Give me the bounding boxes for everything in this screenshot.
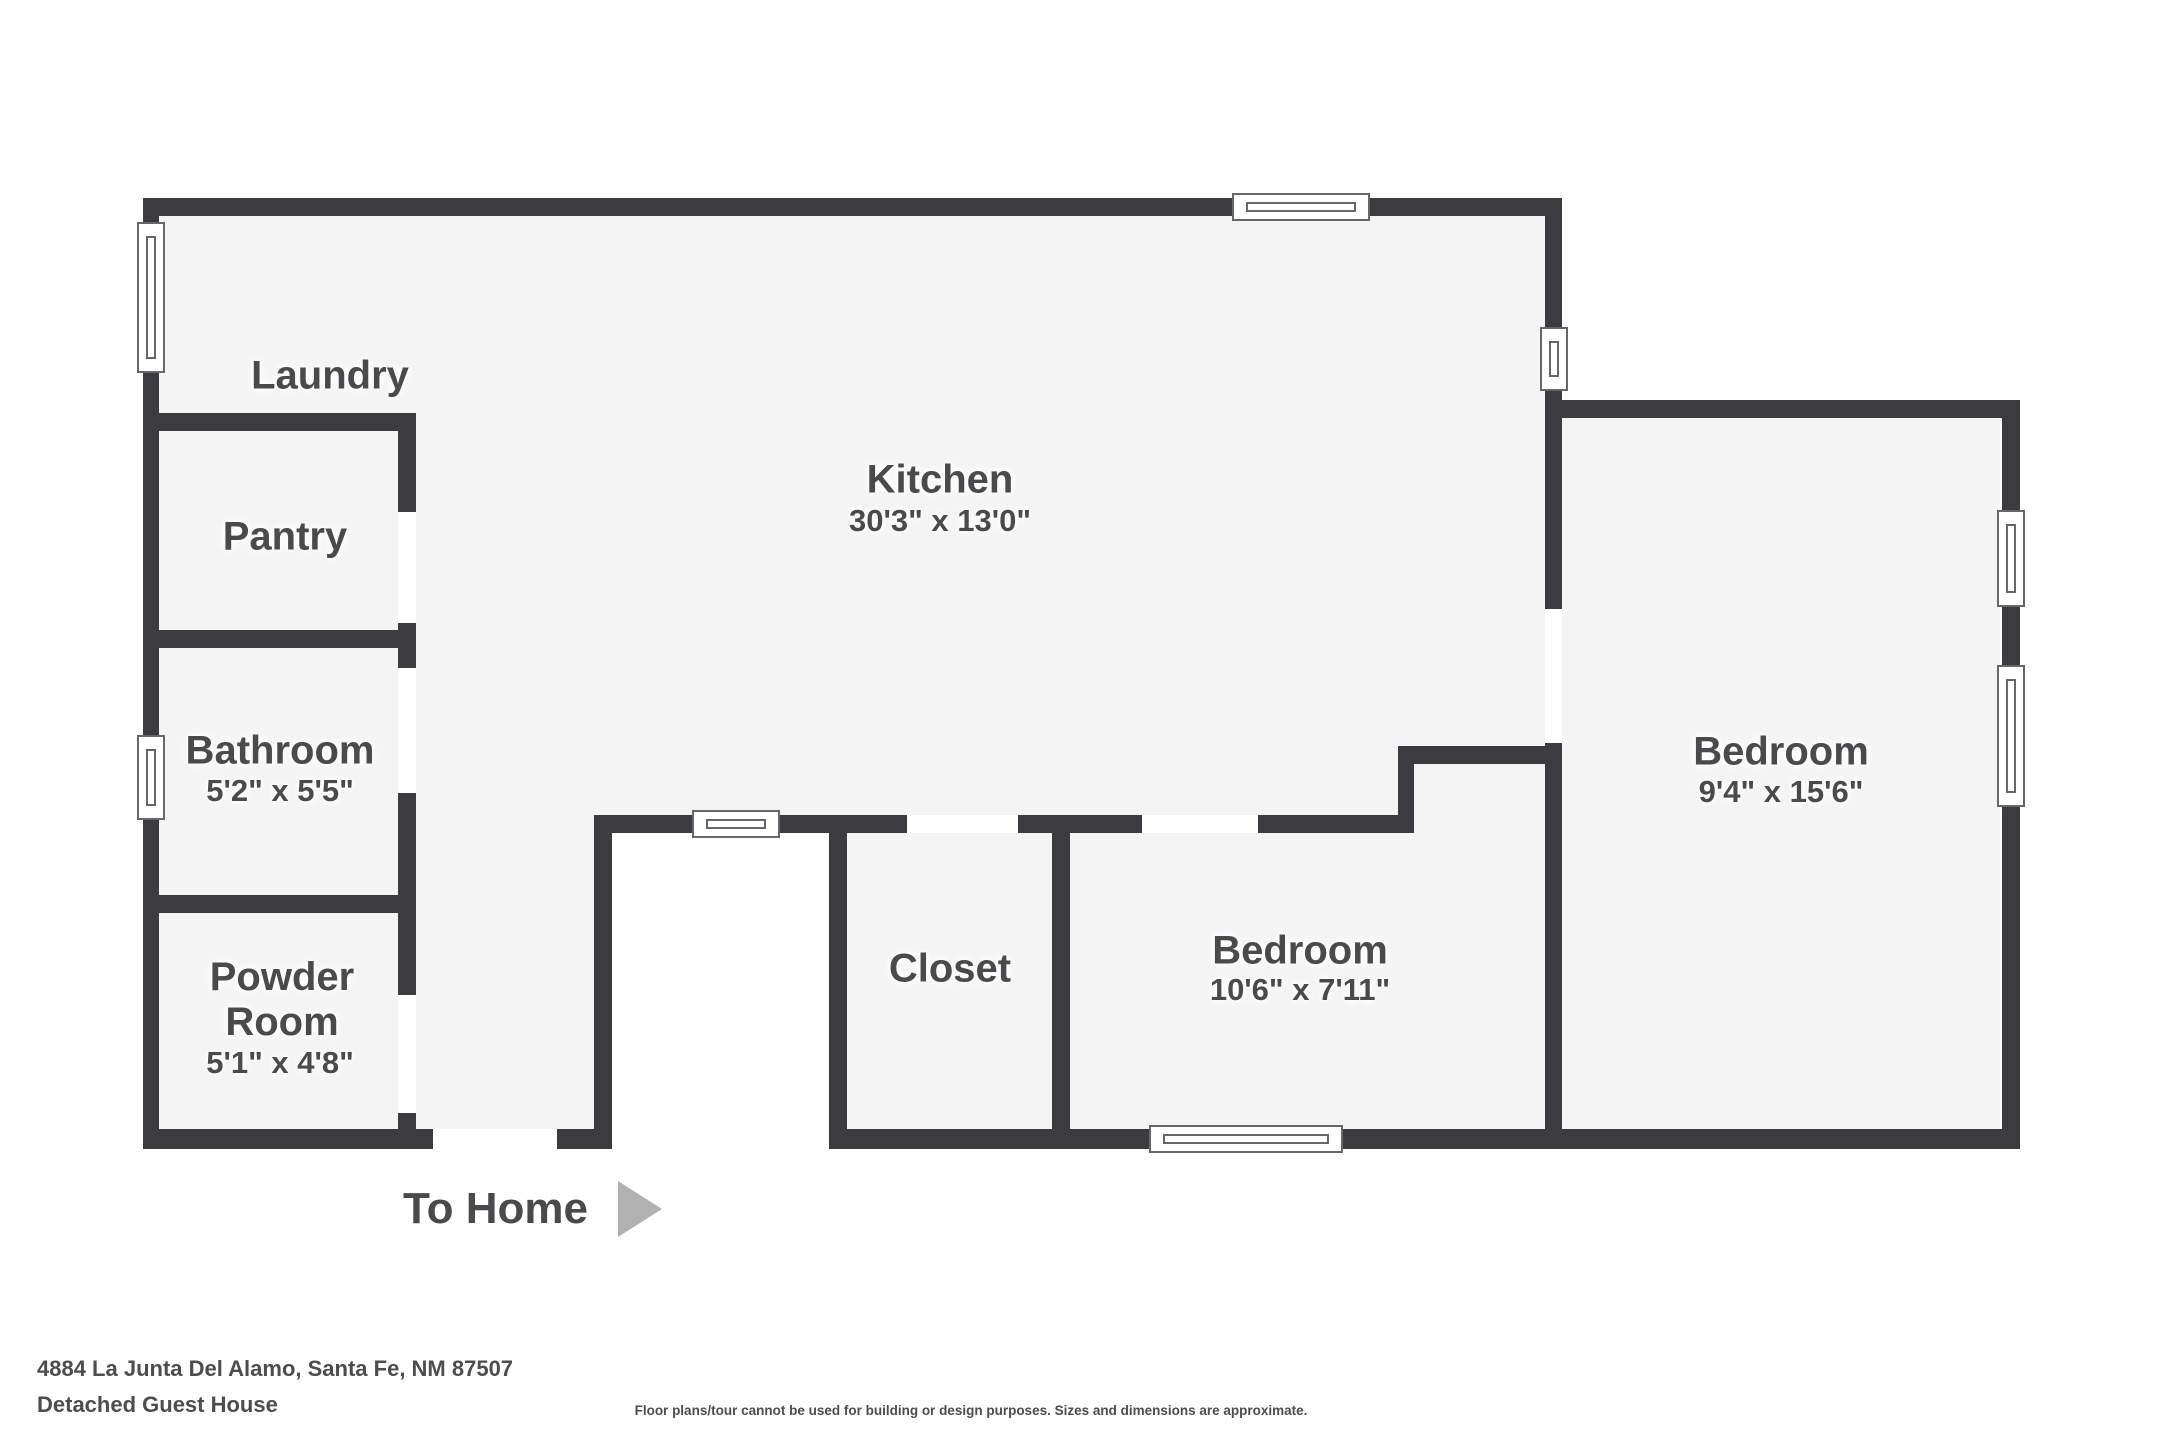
window-kitchen-top: [1232, 193, 1370, 221]
room-label-bathroom: Bathroom: [186, 729, 375, 774]
wall-bedroom-large-top: [1562, 400, 2020, 418]
window-glass: [706, 819, 766, 829]
room-dims-bedroom-small: 10'6" x 7'11": [1210, 972, 1390, 1008]
room-dims-bathroom: 5'2" x 5'5": [206, 773, 354, 809]
door-opening-bedroom-large: [1545, 609, 1562, 743]
to-home-annotation: To Home: [403, 1181, 662, 1237]
footer-subtitle: Detached Guest House: [37, 1392, 278, 1418]
room-dims-bedroom-large: 9'4" x 15'6": [1699, 774, 1864, 810]
window-bedroom-large-lower: [1997, 665, 2025, 807]
window-glass: [146, 236, 156, 359]
window-kitchen-notch: [692, 810, 780, 838]
door-opening-closet: [907, 815, 1018, 833]
window-kitchen-right: [1540, 327, 1568, 391]
wall-pantry-bottom: [143, 630, 416, 648]
window-laundry-left: [137, 222, 165, 373]
door-opening-pantry: [398, 512, 416, 623]
window-bedroom-small-bottom: [1149, 1125, 1343, 1153]
wall-bathroom-bottom: [143, 895, 416, 913]
door-opening-bathroom: [398, 668, 416, 793]
room-label-laundry: Laundry: [251, 354, 409, 399]
room-label-kitchen: Kitchen: [867, 458, 1014, 503]
floor-hallway: [416, 833, 594, 1129]
wall-closet-bedroom-divider: [1052, 833, 1070, 1149]
window-bathroom-left: [137, 735, 165, 820]
room-label-bedroom-large: Bedroom: [1693, 730, 1869, 775]
door-opening-to-home: [433, 1129, 557, 1149]
wall-bottom-right: [829, 1129, 2020, 1149]
window-bedroom-large-upper: [1997, 510, 2025, 607]
wall-pantry-top: [143, 413, 416, 431]
wall-hallway-right: [594, 815, 612, 1149]
window-glass: [1549, 341, 1559, 377]
wall-step-horizontal: [1398, 746, 1562, 764]
wall-closet-left: [829, 833, 847, 1149]
room-dims-powder-room: 5'1" x 4'8": [206, 1045, 354, 1081]
window-glass: [146, 749, 156, 806]
room-label-pantry: Pantry: [223, 515, 348, 560]
footer-address: 4884 La Junta Del Alamo, Santa Fe, NM 87…: [37, 1356, 513, 1382]
room-dims-kitchen: 30'3" x 13'0": [849, 503, 1031, 539]
window-glass: [2006, 679, 2016, 793]
to-home-label: To Home: [403, 1184, 588, 1234]
door-opening-bedroom-small: [1142, 815, 1258, 833]
room-label-bedroom-small: Bedroom: [1212, 929, 1388, 974]
room-label-powder-room: Powder Room: [152, 955, 412, 1045]
window-glass: [2006, 524, 2016, 593]
floor-plan: Laundry Pantry Kitchen 30'3" x 13'0" Bat…: [0, 0, 2160, 1440]
window-glass: [1163, 1134, 1329, 1144]
room-label-closet: Closet: [889, 947, 1011, 992]
window-glass: [1246, 202, 1356, 212]
right-arrow-icon: [618, 1181, 662, 1237]
footer-disclaimer: Floor plans/tour cannot be used for buil…: [635, 1403, 1308, 1418]
